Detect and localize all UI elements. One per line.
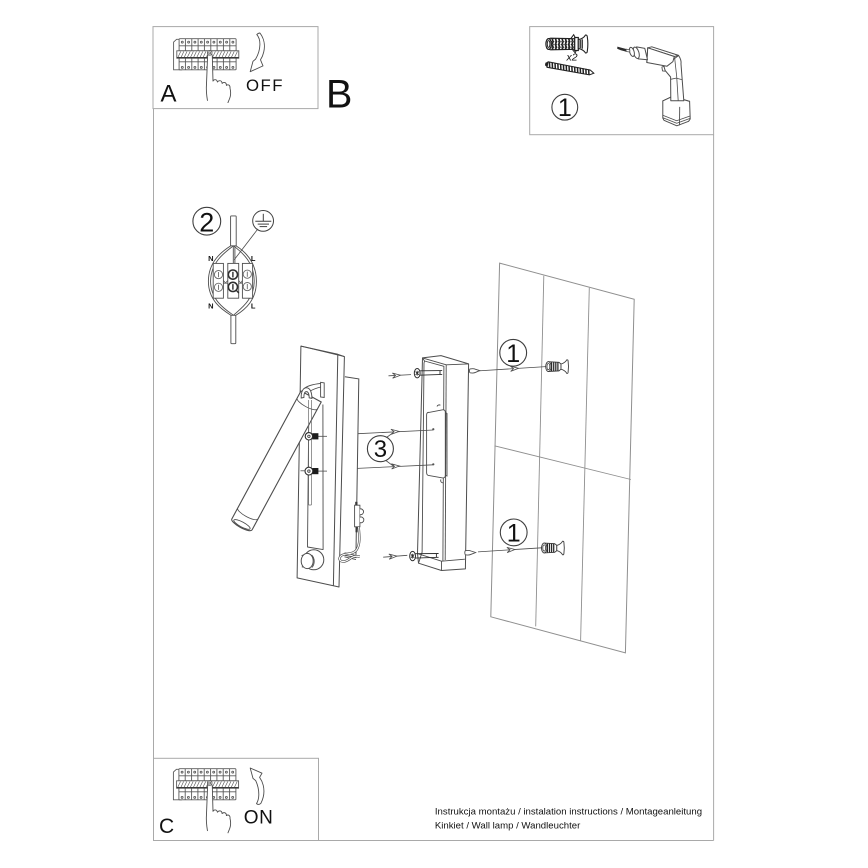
svg-text:A: A	[161, 81, 177, 108]
svg-text:1: 1	[506, 340, 520, 368]
svg-text:2: 2	[199, 207, 214, 237]
svg-text:ON: ON	[244, 807, 273, 828]
svg-text:L: L	[251, 302, 256, 311]
svg-text:N: N	[208, 254, 213, 263]
svg-text:3: 3	[374, 436, 387, 463]
svg-text:B: B	[326, 73, 352, 117]
svg-text:Kinkiet / Wall lamp / Wandleuc: Kinkiet / Wall lamp / Wandleuchter	[435, 820, 581, 831]
svg-text:OFF: OFF	[246, 76, 284, 95]
svg-text:1: 1	[507, 519, 521, 547]
svg-text:N: N	[208, 302, 213, 311]
svg-text:Instrukcja montażu / instalati: Instrukcja montażu / instalation instruc…	[435, 807, 702, 818]
svg-text:C: C	[159, 815, 174, 838]
svg-text:1: 1	[558, 94, 572, 122]
svg-text:L: L	[251, 254, 256, 263]
svg-text:x2: x2	[566, 52, 578, 64]
